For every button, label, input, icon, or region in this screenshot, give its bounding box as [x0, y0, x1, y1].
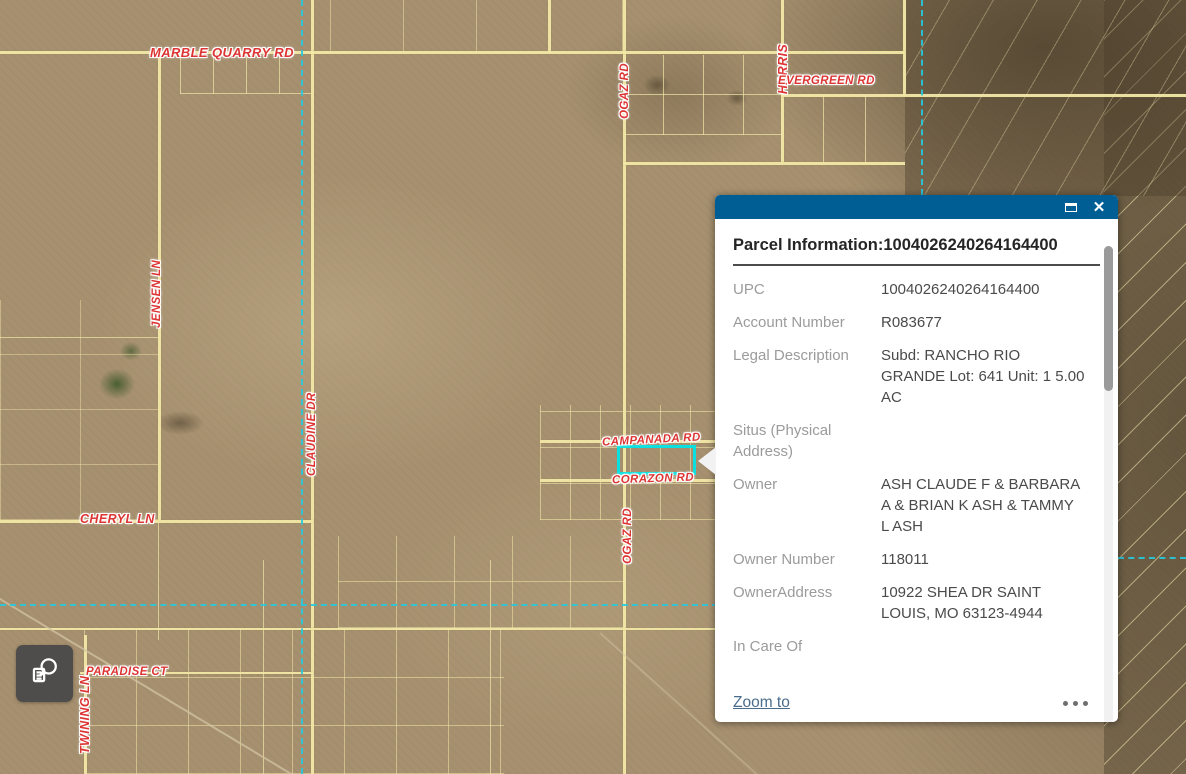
field-row-owner-address: OwnerAddress 10922 SHEA DR SAINT LOUIS, …	[733, 582, 1085, 624]
maximize-icon	[1065, 203, 1077, 212]
field-label: UPC	[733, 279, 881, 300]
road-label-twining-ln: TWINING LN	[78, 676, 92, 754]
field-value	[881, 636, 1085, 657]
road-label-ogaz-rd-north: OGAZ RD	[619, 61, 631, 121]
parcel-grid	[330, 0, 623, 51]
field-value: Subd: RANCHO RIO GRANDE Lot: 641 Unit: 1…	[881, 345, 1085, 408]
field-label: Owner Number	[733, 549, 881, 570]
parcel-info-popup: ✕ Parcel Information:1004026240264164400…	[715, 195, 1118, 722]
parcel-line	[158, 520, 159, 640]
ellipsis-icon[interactable]	[1059, 697, 1092, 710]
popup-pointer-arrow	[698, 447, 716, 475]
section-line-horizontal	[1118, 557, 1186, 559]
field-label: Situs (Physical Address)	[733, 420, 881, 462]
popup-title: Parcel Information:1004026240264164400	[733, 236, 1100, 255]
field-value: 10922 SHEA DR SAINT LOUIS, MO 63123-4944	[881, 582, 1085, 624]
terrain-rugged-topright	[905, 0, 1186, 196]
section-line-vertical	[301, 0, 303, 774]
field-row-upc: UPC 1004026240264164400	[733, 279, 1085, 300]
road-line	[903, 0, 906, 96]
field-row-owner-number: Owner Number 118011	[733, 549, 1085, 570]
parcel-grid	[84, 628, 504, 774]
field-label: Legal Description	[733, 345, 881, 408]
close-icon: ✕	[1093, 200, 1106, 215]
parcel-grid	[338, 536, 625, 628]
app-window: MARBLE QUARRY RD OGAZ RD HARRIS EVERGREE…	[0, 0, 1186, 774]
selected-parcel-highlight	[617, 445, 696, 475]
road-label-harris: HARRIS	[776, 34, 790, 104]
field-row-situs-address: Situs (Physical Address)	[733, 420, 1085, 462]
road-label-evergreen-rd: EVERGREEN RD	[778, 75, 875, 87]
field-row-legal-description: Legal Description Subd: RANCHO RIO GRAND…	[733, 345, 1085, 408]
parcel-grid	[623, 55, 781, 135]
title-divider	[733, 264, 1100, 266]
field-value: R083677	[881, 312, 1085, 333]
field-value: 118011	[881, 549, 1085, 570]
road-line	[623, 162, 905, 165]
field-row-in-care-of: In Care Of	[733, 636, 1085, 657]
zoom-to-link[interactable]: Zoom to	[733, 694, 790, 712]
close-button[interactable]: ✕	[1090, 198, 1108, 216]
field-row-account-number: Account Number R083677	[733, 312, 1085, 333]
popup-body: Parcel Information:1004026240264164400 U…	[715, 219, 1118, 722]
field-label: OwnerAddress	[733, 582, 881, 624]
field-label: Owner	[733, 474, 881, 537]
parcel-grid	[180, 55, 311, 94]
field-value: 1004026240264164400	[881, 279, 1085, 300]
parcel-grid	[0, 300, 160, 520]
maximize-button[interactable]	[1062, 198, 1080, 216]
road-line	[0, 51, 905, 54]
road-label-paradise-ct: PARADISE CT	[86, 666, 168, 678]
popup-scrollbar-thumb[interactable]	[1104, 246, 1113, 391]
road-line	[0, 520, 313, 523]
road-label-jensen-ln: JENSEN LN	[151, 264, 163, 328]
popup-scrollbar-track[interactable]	[1104, 246, 1113, 722]
popup-footer: Zoom to	[733, 693, 1092, 713]
road-label-claudine-dr: CLAUDINE DR	[306, 396, 318, 476]
road-label-ogaz-rd-south: OGAZ RD	[622, 506, 634, 566]
parcel-grid	[781, 96, 905, 162]
popup-header[interactable]: ✕	[715, 195, 1118, 219]
field-label: In Care Of	[733, 636, 881, 657]
road-label-cheryl-ln: CHERYL LN	[80, 512, 155, 526]
parcel-fields: UPC 1004026240264164400 Account Number R…	[733, 279, 1085, 657]
road-label-marble-quarry-rd: MARBLE QUARRY RD	[150, 45, 294, 60]
section-line-vertical	[921, 0, 923, 195]
field-label: Account Number	[733, 312, 881, 333]
attribute-search-icon	[28, 654, 62, 693]
attribute-search-button[interactable]	[16, 645, 73, 702]
section-line-horizontal	[0, 604, 718, 606]
field-value	[881, 420, 1085, 462]
field-row-owner: Owner ASH CLAUDE F & BARBARA A & BRIAN K…	[733, 474, 1085, 537]
field-value: ASH CLAUDE F & BARBARA A & BRIAN K ASH &…	[881, 474, 1085, 537]
